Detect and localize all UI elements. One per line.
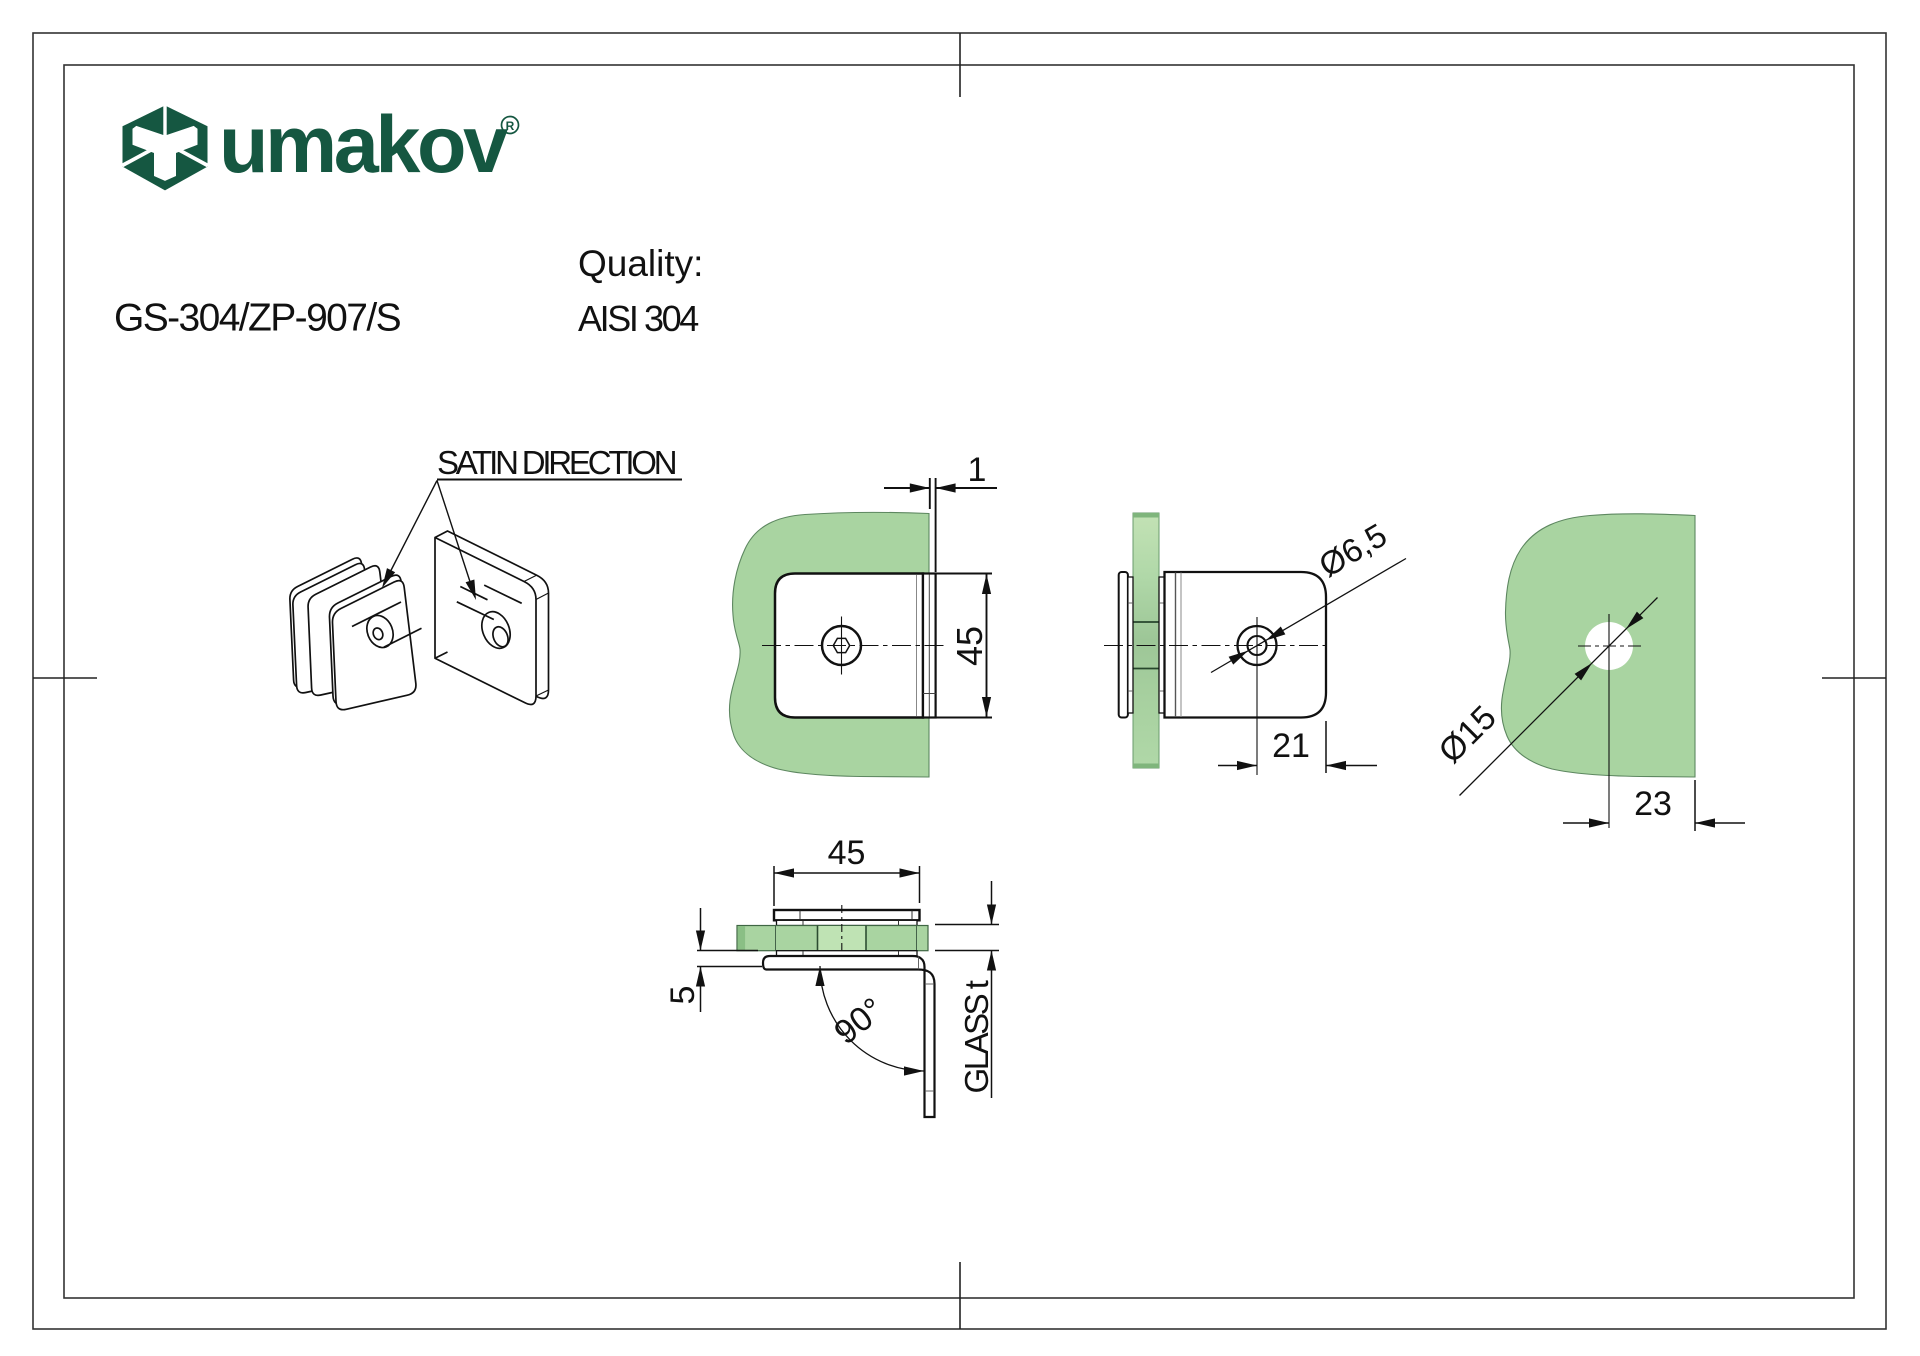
svg-text:GLASS t: GLASS t xyxy=(958,980,995,1093)
svg-text:R: R xyxy=(506,119,515,133)
svg-text:45: 45 xyxy=(949,626,990,666)
svg-text:23: 23 xyxy=(1634,785,1672,823)
svg-text:21: 21 xyxy=(1272,727,1310,765)
svg-text:AISI 304: AISI 304 xyxy=(578,298,698,339)
svg-text:Ø15: Ø15 xyxy=(1431,698,1503,770)
svg-text:Quality:: Quality: xyxy=(578,243,703,284)
svg-text:SATIN DIRECTION: SATIN DIRECTION xyxy=(437,444,676,481)
svg-text:1: 1 xyxy=(968,451,987,489)
svg-text:umakov: umakov xyxy=(219,100,508,190)
svg-text:GS-304/ZP-907/S: GS-304/ZP-907/S xyxy=(114,297,401,340)
svg-text:5: 5 xyxy=(664,986,702,1005)
svg-text:90°: 90° xyxy=(827,991,891,1053)
svg-text:45: 45 xyxy=(828,834,866,872)
